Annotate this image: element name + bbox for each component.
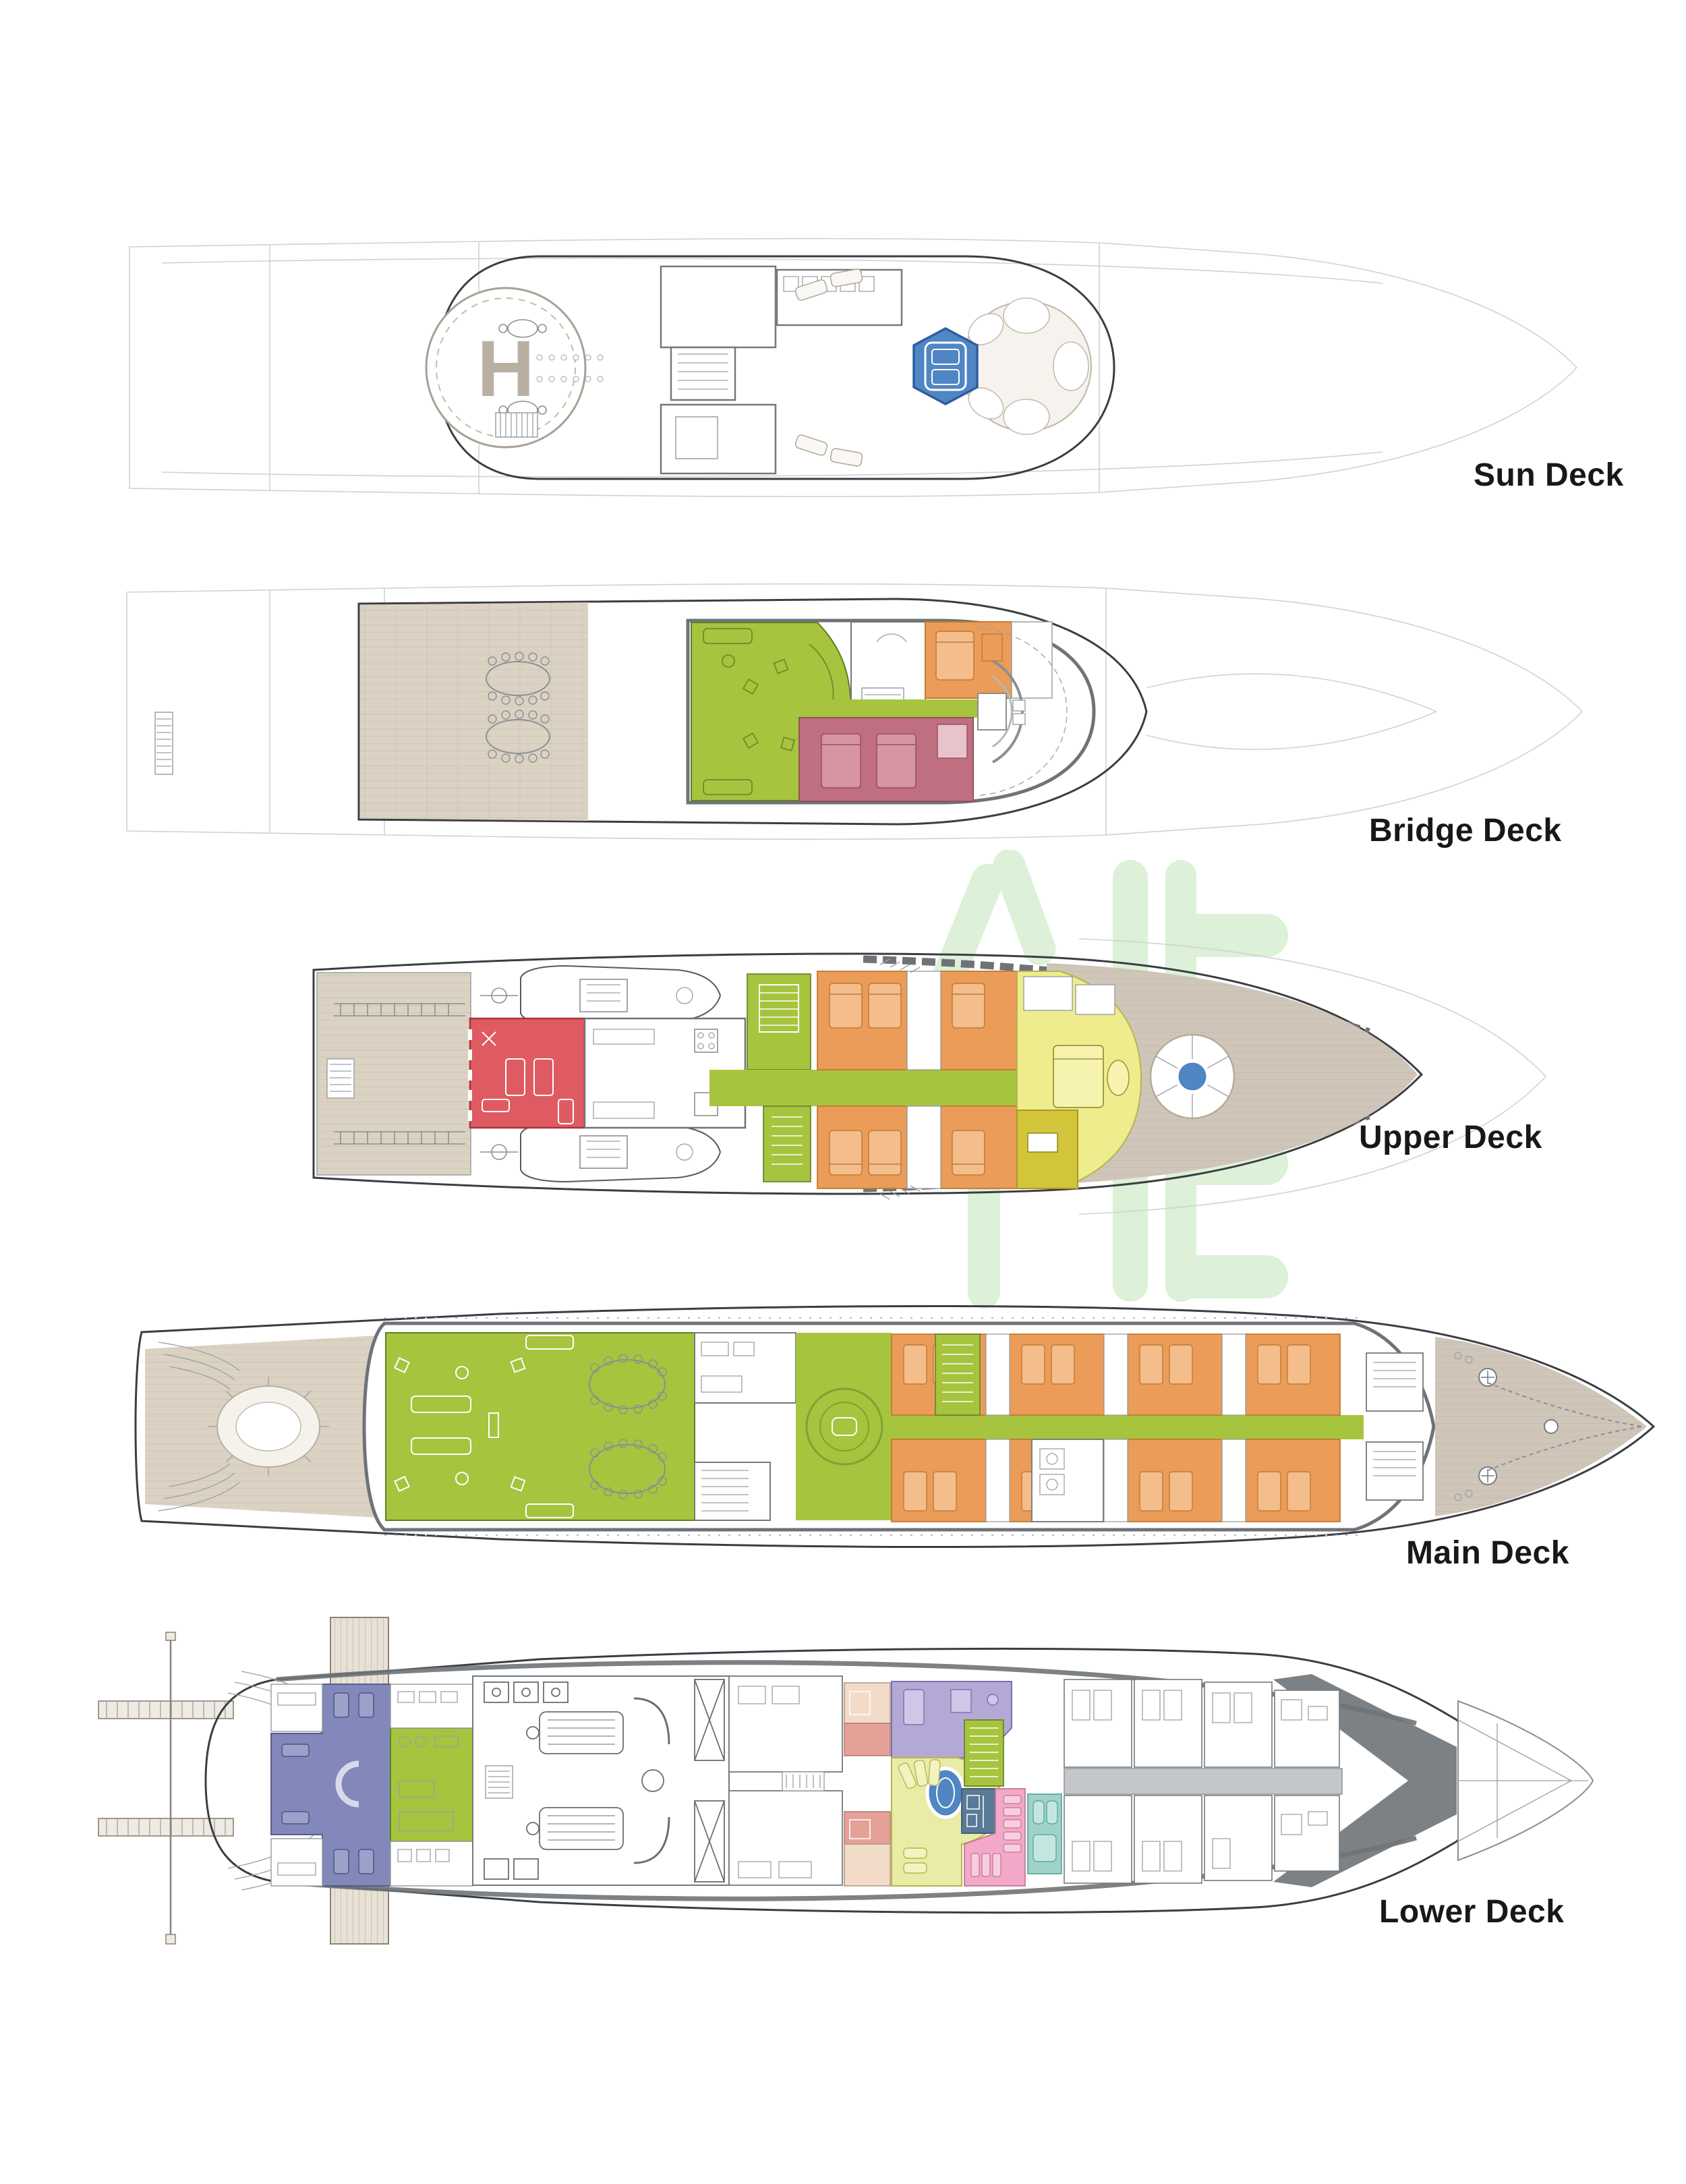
deck-label-main: Main Deck xyxy=(1406,1537,1569,1570)
corridor xyxy=(738,699,1003,718)
cabin-orange xyxy=(925,622,1012,698)
yacht-deck-plans: H xyxy=(0,0,1686,2184)
helipad-h-mark: H xyxy=(477,324,534,413)
deck-label-sun: Sun Deck xyxy=(1474,459,1624,492)
engine-room xyxy=(473,1676,729,1885)
upper-deck-structure xyxy=(314,954,1422,1199)
foredeck-lines xyxy=(1146,674,1436,749)
jacuzzi-pool xyxy=(914,328,977,404)
bridge-deck-structure xyxy=(155,599,1436,824)
laundry-room xyxy=(1032,1439,1103,1522)
main-deck-structure xyxy=(136,1306,1654,1547)
vent-grille xyxy=(496,413,537,437)
stair-top-green xyxy=(935,1334,980,1415)
lower-deck-structure xyxy=(206,1648,1593,1912)
suite-rose xyxy=(799,718,973,801)
wellness-green xyxy=(390,1684,473,1886)
sun-deck-rooms xyxy=(661,266,902,473)
bridge-deck-plan xyxy=(101,580,1673,843)
gym-red xyxy=(468,1018,585,1128)
sun-deck-plan: H xyxy=(101,236,1673,499)
stairwell-green xyxy=(964,1720,1004,1786)
main-deck-plan xyxy=(94,1295,1673,1558)
aft-boat-deck xyxy=(317,973,471,1175)
boarding-ladder xyxy=(155,712,173,774)
tender-boat-bottom xyxy=(480,1122,720,1182)
deck-label-upper: Upper Deck xyxy=(1359,1122,1542,1154)
deck-label-lower: Lower Deck xyxy=(1379,1896,1564,1928)
main-lobby-green xyxy=(796,1333,892,1520)
tender-boat-top xyxy=(480,966,720,1025)
cabin-corridor-green xyxy=(892,1415,1364,1439)
mid-service-rooms xyxy=(729,1676,842,1885)
sun-deck-structure: H xyxy=(426,256,1114,479)
crew-quarters xyxy=(1064,1679,1342,1883)
main-salon-green xyxy=(386,1333,695,1520)
foredeck xyxy=(1435,1337,1647,1516)
deck-label-bridge: Bridge Deck xyxy=(1369,815,1562,847)
bow-skylight-pool xyxy=(1151,1035,1234,1118)
aft-sun-lounge xyxy=(962,298,1091,434)
upper-deck-plan xyxy=(67,931,1679,1228)
small-cabins-column xyxy=(844,1683,890,1886)
